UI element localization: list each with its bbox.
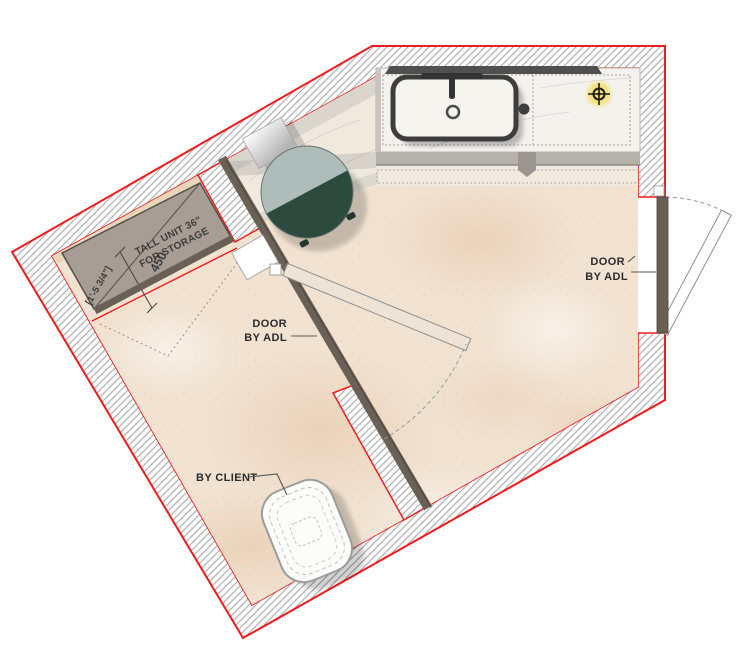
label-by-client: BY CLIENT xyxy=(196,472,257,484)
floor-plan-page: TALL UNIT 36" FOR STORAGE 450 [1'-5 3/4"… xyxy=(0,0,751,671)
faucet-spout-icon xyxy=(449,73,455,99)
label-door-right-line1: DOOR xyxy=(590,256,625,268)
right-door-leaf-closed xyxy=(657,197,668,333)
counter-left-edge xyxy=(376,68,381,152)
floor-plan-svg: TALL UNIT 36" FOR STORAGE 450 [1'-5 3/4"… xyxy=(0,0,751,671)
counter-front-edge xyxy=(376,152,640,165)
vanity-counter xyxy=(376,66,640,183)
label-door-left-line2: BY ADL xyxy=(244,332,287,344)
backsplash-bar xyxy=(385,66,602,74)
label-door-left-line1: DOOR xyxy=(252,318,287,330)
label-door-right-line2: BY ADL xyxy=(585,271,628,283)
right-door-hinge-block xyxy=(654,186,664,196)
pop-up-control-dot xyxy=(519,104,530,115)
left-door-hinge-block xyxy=(270,264,281,275)
right-door-swing-arc xyxy=(666,197,727,213)
crosshair-center xyxy=(597,92,600,95)
reference-marker xyxy=(584,79,614,109)
drain-circle-icon xyxy=(447,106,459,118)
floor-mottle xyxy=(420,360,580,440)
right-door xyxy=(654,186,731,335)
